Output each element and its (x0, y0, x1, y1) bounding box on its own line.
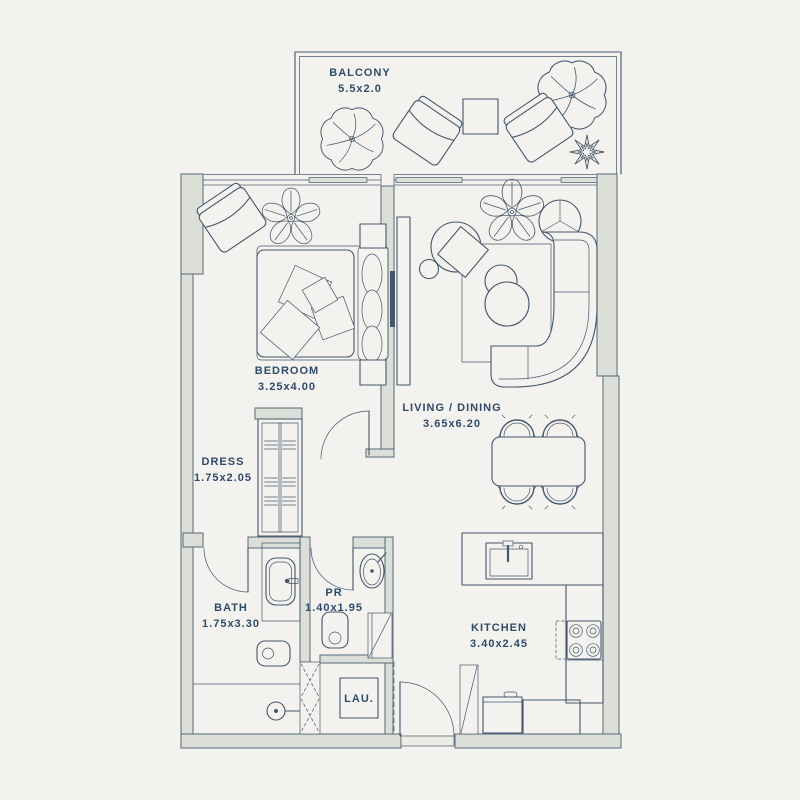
sliding-panel (309, 178, 367, 183)
tv-console (397, 217, 410, 385)
shaft (300, 662, 320, 734)
bathroom: BATH 1.75x3.30 (193, 543, 310, 720)
pr-label: PR (325, 587, 342, 599)
stove-dashed-zone (556, 621, 567, 659)
balcony-lounge-chair-left (391, 94, 465, 167)
balcony-table (463, 99, 498, 134)
pillow (362, 254, 382, 294)
kitchen: KITCHEN 3.40x2.45 (462, 533, 603, 734)
bedroom-armchair (194, 181, 268, 254)
balcony-star-plant-icon (570, 135, 604, 169)
bath-door (204, 548, 248, 592)
wardrobe-shelf-lines (265, 441, 296, 505)
bath-toilet-bowl (263, 648, 274, 659)
bath-label: BATH (214, 602, 248, 614)
kitchen-dims: 3.40x2.45 (470, 638, 528, 650)
bedroom-plant-icon (260, 188, 322, 247)
fridge (483, 697, 522, 733)
kitchen-right-counter (566, 585, 603, 703)
wardrobe-inner (262, 423, 298, 532)
laundry-label: LAU. (344, 693, 374, 705)
wall-right-top-column (597, 174, 617, 376)
dining-chair (497, 485, 537, 509)
bath-faucet-arm (289, 579, 298, 584)
balcony: BALCONY 5.5x2.0 (295, 52, 621, 174)
wall-bottom-right (455, 734, 621, 748)
stove (567, 621, 601, 659)
wardrobe (258, 419, 302, 536)
entry-threshold (401, 736, 454, 746)
bath-dims: 1.75x3.30 (202, 618, 260, 630)
floor-plan-drawing: BALCONY 5.5x2.0 (0, 0, 800, 800)
dining-chair (540, 485, 580, 509)
dress-label: DRESS (202, 456, 245, 468)
pr-dims: 1.40x1.95 (305, 602, 363, 614)
wall-bottom-left (181, 734, 401, 748)
pillow (362, 290, 382, 330)
bedroom: BEDROOM 3.25x4.00 (194, 181, 388, 393)
pr-toilet-bowl (329, 632, 341, 644)
kitchen-label: KITCHEN (471, 622, 527, 634)
sliding-panel (396, 178, 462, 183)
balcony-label: BALCONY (329, 67, 390, 79)
living-armchair (420, 222, 489, 279)
balcony-lounge-chair-right (501, 91, 575, 164)
wall-left (181, 274, 193, 748)
pr-faucet-icon (370, 569, 374, 573)
bath-sink (266, 558, 295, 605)
armchair-side-table (420, 260, 439, 279)
wall-divider-cap (366, 449, 394, 457)
balcony-tree-left-icon (321, 108, 383, 170)
vanity-counter (262, 543, 300, 621)
dressing-area: DRESS 1.75x2.05 (194, 419, 302, 536)
living-dining: LIVING / DINING 3.65x6.20 (390, 179, 597, 509)
floor-plan-page: BALCONY 5.5x2.0 (0, 0, 800, 800)
wall-bath-pr-divider (300, 537, 310, 662)
pr-toilet (322, 612, 348, 648)
kitchen-soap-dot (519, 545, 523, 549)
pillow (362, 326, 382, 362)
coffee-tables (485, 265, 529, 326)
stove-burners (570, 625, 600, 657)
shower-head-dot (274, 709, 278, 713)
wall-wardrobe-top (255, 408, 302, 419)
balcony-dims: 5.5x2.0 (338, 83, 382, 95)
bath-faucet-icon (285, 579, 289, 583)
dining-chair (497, 415, 537, 439)
bedroom-label: BEDROOM (255, 365, 319, 377)
dress-dims: 1.75x2.05 (194, 472, 252, 484)
fridge-handle (504, 692, 517, 697)
living-dims: 3.65x6.20 (423, 418, 481, 430)
living-plant-icon (478, 179, 546, 244)
window-wall (203, 175, 597, 186)
nightstand-top (360, 224, 386, 248)
pr-door (311, 548, 353, 590)
living-label: LIVING / DINING (402, 402, 501, 414)
dining-table (492, 437, 585, 486)
dining-chair (540, 415, 580, 439)
tv (390, 271, 395, 327)
wall-right (603, 376, 619, 734)
bedroom-door (321, 411, 369, 459)
wardrobe-doors-split (279, 423, 281, 532)
wall-left-top-column (181, 174, 203, 274)
bed (257, 246, 388, 362)
dining-set (492, 415, 585, 509)
entry-door (400, 682, 454, 746)
bedroom-dims: 3.25x4.00 (258, 381, 316, 393)
nightstand-bottom (360, 360, 386, 385)
kitchen-bottom-counter (523, 700, 580, 734)
wall-bath-stub (183, 533, 203, 547)
sliding-panel (561, 178, 597, 183)
